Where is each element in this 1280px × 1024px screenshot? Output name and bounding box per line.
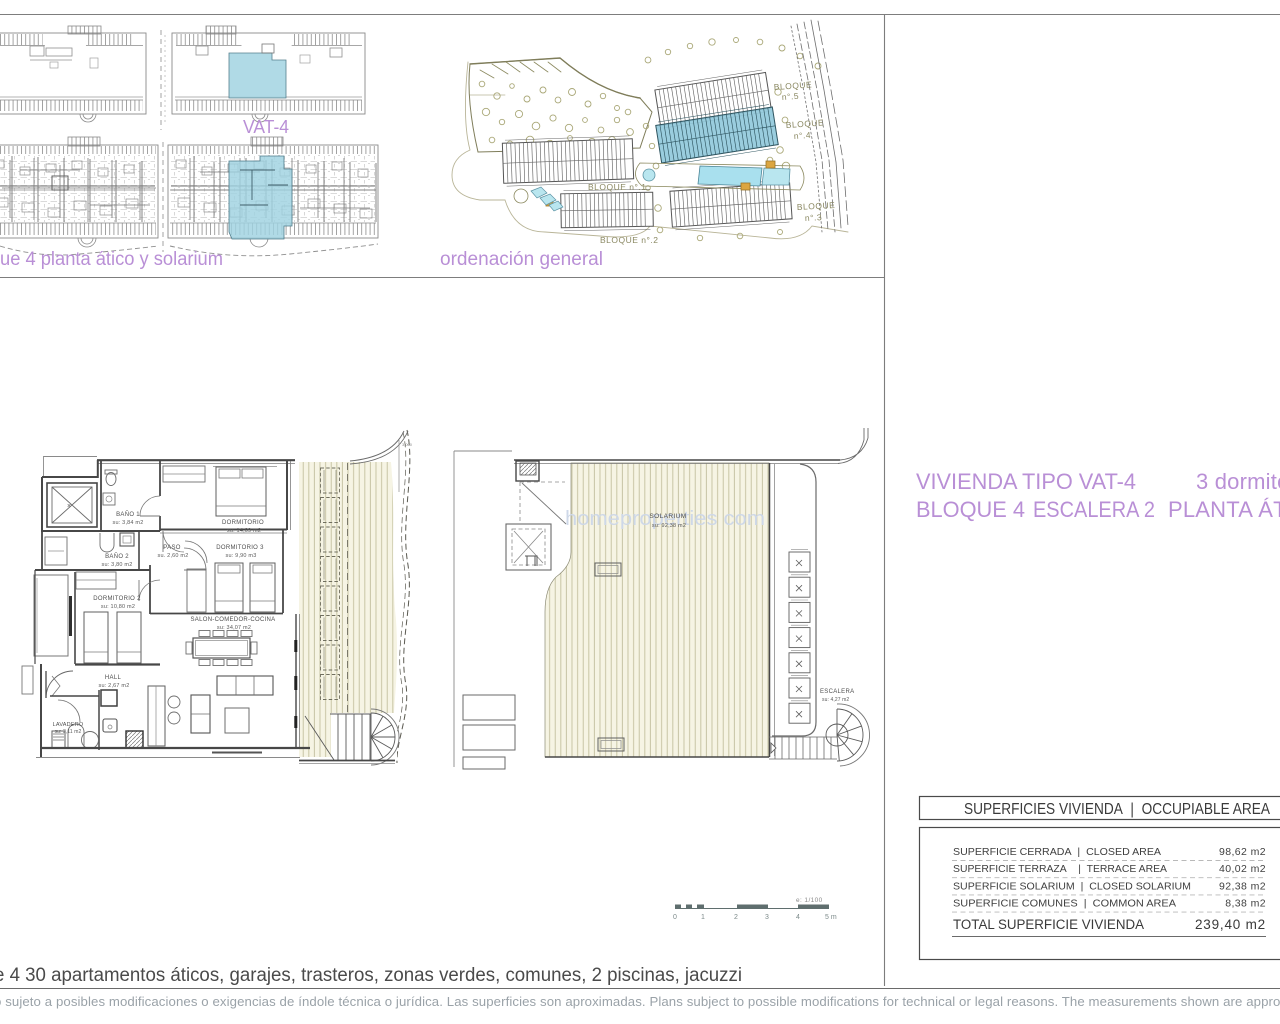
svg-text:VAT-4: VAT-4 xyxy=(243,116,289,137)
svg-text:BLOQUE n°.1: BLOQUE n°.1 xyxy=(588,182,647,192)
svg-text:su: 2,67 m2: su: 2,67 m2 xyxy=(99,683,130,689)
svg-text:su: 3,11 m2: su: 3,11 m2 xyxy=(55,729,82,735)
svg-text:SOLARIUM: SOLARIUM xyxy=(649,513,686,520)
svg-text:e: 1/100: e: 1/100 xyxy=(796,897,823,904)
svg-text:BAÑO 1: BAÑO 1 xyxy=(116,511,140,518)
svg-text:SUPERFICIE COMUNES | COMMON: SUPERFICIE COMUNES | COMMON AREA xyxy=(953,898,1176,910)
svg-text:su: 14,09 m2: su: 14,09 m2 xyxy=(227,528,261,534)
svg-text:3: 3 xyxy=(765,914,769,921)
svg-text:BAÑO 2: BAÑO 2 xyxy=(105,553,129,560)
svg-text:SUPERFICIE CERRADA | CLOSED: SUPERFICIE CERRADA | CLOSED AREA xyxy=(953,846,1161,858)
svg-text:239,40 m2: 239,40 m2 xyxy=(1195,917,1266,932)
svg-text:ue 4 planta ático y solarium: ue 4 planta ático y solarium xyxy=(0,249,223,270)
svg-text:3,000: 3,000 xyxy=(402,442,413,447)
svg-text:ESCALERA 2: ESCALERA 2 xyxy=(1033,497,1155,522)
svg-text:su: 10,80 m2: su: 10,80 m2 xyxy=(101,604,135,610)
svg-text:SUPERFICIE TERRAZA | TERRA: SUPERFICIE TERRAZA | TERRACE AREA xyxy=(953,863,1167,875)
svg-text:SALON-COMEDOR-COCINA: SALON-COMEDOR-COCINA xyxy=(190,617,275,623)
svg-text:n°.4: n°.4 xyxy=(793,130,811,141)
svg-text:DORMITORIO: DORMITORIO xyxy=(222,520,264,526)
svg-text:VIVIENDA TIPO VAT-4: VIVIENDA TIPO VAT-4 xyxy=(916,469,1136,494)
svg-text:e 4 30 apartamentos áticos, ga: e 4 30 apartamentos áticos, garajes, tra… xyxy=(0,965,742,986)
svg-text:LAVADERO: LAVADERO xyxy=(53,722,84,728)
svg-text:SUPERFICIE SOLARIUM | CLOSED: SUPERFICIE SOLARIUM | CLOSED SOLARIUM xyxy=(953,880,1191,892)
svg-text:92,38 m2: 92,38 m2 xyxy=(1219,880,1266,892)
svg-text:1: 1 xyxy=(701,914,705,921)
svg-text:ESCALERA: ESCALERA xyxy=(820,689,854,695)
svg-text:su: 4,27 m2: su: 4,27 m2 xyxy=(822,697,849,703)
svg-text:TOTAL SUPERFICIE VIVIENDA: TOTAL SUPERFICIE VIVIENDA xyxy=(953,917,1144,932)
svg-text:2: 2 xyxy=(734,914,738,921)
svg-text:su: 3,84 m2: su: 3,84 m2 xyxy=(113,520,144,526)
svg-text:DORMITORIO 3: DORMITORIO 3 xyxy=(216,545,264,551)
svg-text:40,02 m2: 40,02 m2 xyxy=(1219,863,1266,875)
svg-text:PASO: PASO xyxy=(163,545,180,551)
svg-text:×: × xyxy=(67,503,71,510)
svg-text:su: 3,80 m2: su: 3,80 m2 xyxy=(102,562,133,568)
svg-text:su: 92,38 m2: su: 92,38 m2 xyxy=(652,523,686,529)
svg-text:5 m: 5 m xyxy=(825,914,837,921)
svg-text:PLANTA ÁTICO: PLANTA ÁTICO xyxy=(1168,497,1280,522)
svg-text:BLOQUE: BLOQUE xyxy=(797,200,836,212)
svg-text:o sujeto a posibles modificaci: o sujeto a posibles modificaciones o exi… xyxy=(0,994,1280,1009)
svg-text:8,38 m2: 8,38 m2 xyxy=(1225,898,1266,910)
svg-text:DORMITORIO 2: DORMITORIO 2 xyxy=(93,596,141,602)
svg-text:n°.3: n°.3 xyxy=(805,212,823,223)
svg-text:98,62 m2: 98,62 m2 xyxy=(1219,846,1266,858)
svg-text:BLOQUE 4: BLOQUE 4 xyxy=(916,497,1025,522)
svg-text:su: 9,90 m3: su: 9,90 m3 xyxy=(226,553,257,559)
svg-text:n°.5: n°.5 xyxy=(781,91,799,102)
svg-text:BLOQUE n°.2: BLOQUE n°.2 xyxy=(600,235,659,245)
svg-text:ordenación general: ordenación general xyxy=(440,249,603,270)
svg-text:SUPERFICIES VIVIENDA | OCCUP: SUPERFICIES VIVIENDA | OCCUPIABLE AREA xyxy=(964,801,1271,818)
svg-text:HALL: HALL xyxy=(105,675,122,681)
svg-text:3 dormitorios: 3 dormitorios xyxy=(1196,469,1280,494)
svg-text:su. 2,60 m2: su. 2,60 m2 xyxy=(158,553,189,559)
svg-text:0: 0 xyxy=(673,914,677,921)
svg-text:4: 4 xyxy=(796,914,800,921)
